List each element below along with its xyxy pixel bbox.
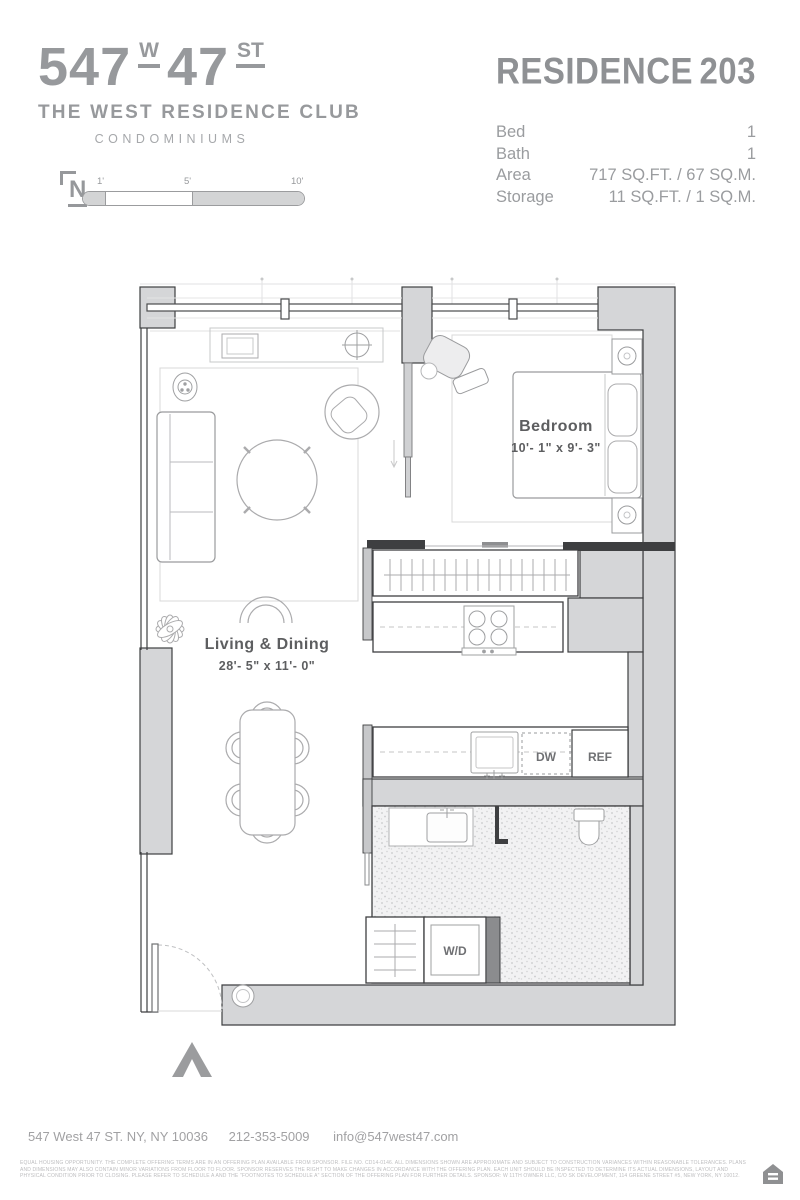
legal-disclaimer: EQUAL HOUSING OPPORTUNITY. THE COMPLETE … xyxy=(20,1160,750,1180)
lamp-icon xyxy=(618,347,636,365)
sprinkler-icon xyxy=(173,373,197,401)
window-mullion-2 xyxy=(509,299,517,319)
wall-bath-north xyxy=(363,779,643,806)
living-dining-dimensions: 28'- 5" x 11'- 0" xyxy=(219,659,316,673)
sliding-partition xyxy=(391,363,412,497)
wall-pilaster-west xyxy=(140,648,172,854)
dishwasher-label: DW xyxy=(536,750,557,764)
wall-shaft-2 xyxy=(568,598,643,652)
bath-jamb xyxy=(495,806,499,840)
bed xyxy=(513,372,641,498)
entry-column xyxy=(232,985,254,1007)
ceiling-light-icon xyxy=(342,330,372,360)
wall-bath-east xyxy=(630,806,643,985)
bath-door xyxy=(365,853,369,885)
round-table xyxy=(237,440,317,520)
bedroom-label: Bedroom xyxy=(519,418,593,435)
door-swing-arc xyxy=(158,945,222,1009)
living-dining-label: Living & Dining xyxy=(205,636,330,653)
entry-arrow-icon xyxy=(172,1042,212,1077)
pillow xyxy=(608,384,637,436)
living-dining xyxy=(155,328,383,843)
floor-plan: DW REF W/D xyxy=(0,0,800,1200)
vanity xyxy=(389,808,473,846)
linen-closet xyxy=(366,917,424,983)
refrigerator-label: REF xyxy=(588,750,612,764)
footer-phone: 212-353-5009 xyxy=(229,1129,310,1144)
window-mullion-1 xyxy=(281,299,289,319)
window-band xyxy=(147,298,641,331)
bathroom: W/D xyxy=(366,806,630,983)
equal-housing-icon xyxy=(761,1162,785,1186)
washer-dryer: W/D xyxy=(424,917,486,983)
footer-contact: 547 West 47 ST. NY, NY 10036 212-353-500… xyxy=(28,1129,458,1144)
pillow xyxy=(608,441,637,493)
stool xyxy=(421,363,437,379)
bath-stub-wall xyxy=(486,917,500,983)
closet xyxy=(373,550,578,596)
washer-dryer-label: W/D xyxy=(443,944,467,958)
wall-shaft-3 xyxy=(628,652,643,777)
desk-chair xyxy=(420,332,489,395)
wall-shaft-1 xyxy=(580,548,643,598)
plant xyxy=(155,614,185,644)
kitchen-sink xyxy=(471,732,518,779)
window-west xyxy=(147,304,402,311)
cooktop xyxy=(462,606,516,655)
closet-door-track xyxy=(482,542,508,548)
lamp-icon xyxy=(618,506,636,524)
sofa xyxy=(157,412,215,562)
footer-email: info@547west47.com xyxy=(333,1129,458,1144)
entry-door-leaf xyxy=(152,944,158,1012)
bedroom-dimensions: 10'- 1" x 9'- 3" xyxy=(511,441,601,455)
dining-table xyxy=(240,710,295,835)
swivel-chair xyxy=(325,385,379,439)
tick-dots xyxy=(261,278,559,281)
footer-address: 547 West 47 ST. NY, NY 10036 xyxy=(28,1129,208,1144)
